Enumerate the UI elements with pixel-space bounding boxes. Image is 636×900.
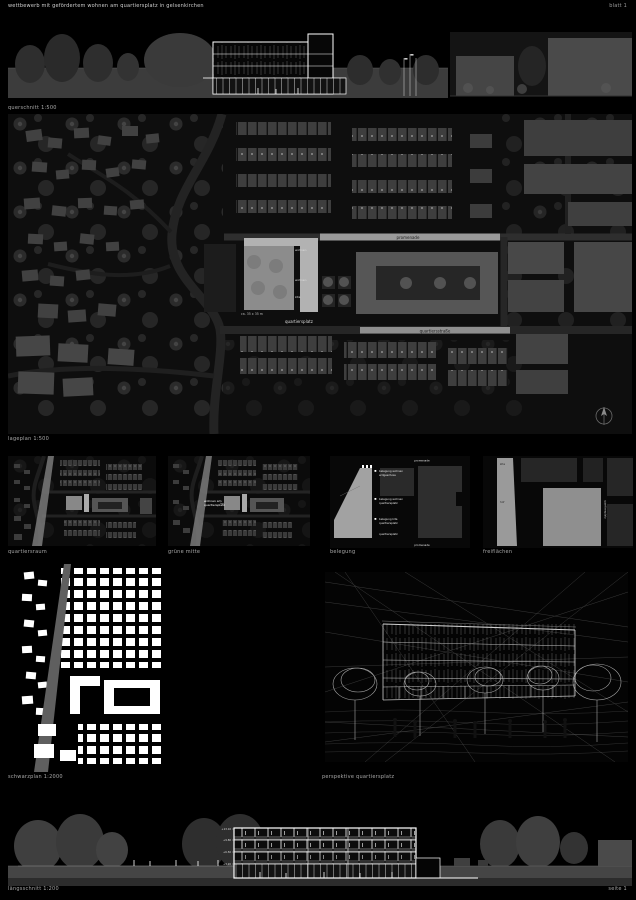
mini-a-drawing — [8, 456, 156, 546]
label-street-bottom: quartiersstraße — [420, 329, 451, 334]
presentation-board: wettbewerb mit gefördertem wohnen am qua… — [0, 0, 636, 900]
label-street-top: promenade — [397, 235, 420, 240]
caption-siteplan: lageplan 1:500 — [8, 436, 49, 442]
sheet-number: blatt 1 — [609, 3, 627, 9]
freiflaechen-label-kita: kita — [500, 462, 505, 466]
label-block-3: kita — [295, 295, 301, 299]
panel-top-elevation — [8, 28, 632, 104]
freiflaechen-square — [543, 488, 601, 546]
label-block-2: wohnen — [295, 278, 307, 282]
siteplan-courtyard-block — [356, 252, 498, 314]
caption-freiflaechen: freiflächen — [483, 549, 512, 555]
svg-text:+9.80: +9.80 — [223, 838, 231, 842]
caption-bottom-section: längsschnitt 1:200 — [8, 886, 59, 892]
mini-b-drawing: wohnen am quartiersplatz — [168, 456, 310, 546]
belegung-bottom-label: promenade — [414, 543, 430, 547]
panel-mini-b: wohnen am quartiersplatz — [168, 456, 310, 546]
label-block-1: wohnen — [295, 248, 307, 252]
belegung-drawing: promenade belegung wohnen erdgeschoss be… — [330, 456, 470, 548]
board-title: wettbewerb mit gefördertem wohnen am qua… — [8, 3, 204, 9]
label-plaza: quartiersplatz — [285, 319, 313, 324]
sketch-building — [382, 621, 576, 700]
svg-text:+6.50: +6.50 — [223, 850, 231, 854]
belegung-item: quartiersplatz — [379, 501, 398, 505]
section-right-building — [598, 840, 632, 866]
panel-bottom-section: +13.10 +9.80 +6.50 +3.20 — [8, 814, 632, 886]
caption-schwarzplan: schwarzplan 1:2000 — [8, 774, 63, 780]
panel-schwarzplan — [8, 564, 168, 772]
svg-text:+3.20: +3.20 — [223, 862, 231, 866]
caption-perspective: perspektive quartiersplatz — [322, 774, 394, 780]
freiflaechen-label-hof: hof — [500, 500, 504, 504]
belegung-top-label: promenade — [414, 459, 430, 463]
belegung-item: erdgeschoss — [379, 473, 396, 477]
panel-siteplan: promenade quartiersstraße quartiersplatz… — [8, 114, 632, 434]
building-section-white — [203, 34, 346, 94]
panel-freiflaechen: kita hof quartiersplatz — [483, 456, 633, 548]
bottom-section-drawing: +13.10 +9.80 +6.50 +3.20 — [8, 814, 632, 886]
label-plaza-note: ca. 35 x 35 m — [241, 312, 263, 316]
panel-perspective — [325, 572, 628, 762]
freiflaechen-label-square: quartiersplatz — [604, 500, 608, 519]
belegung-item: quartiersplatz — [379, 532, 398, 536]
top-elevation-drawing — [8, 28, 632, 104]
caption-mini-b: grüne mitte — [168, 549, 200, 555]
freiflaechen-drawing: kita hof quartiersplatz — [483, 456, 633, 548]
perspective-drawing — [325, 572, 628, 762]
page-number: seite 1 — [608, 886, 627, 892]
svg-text:+13.10: +13.10 — [221, 827, 231, 831]
panel-mini-a — [8, 456, 156, 546]
caption-mini-a: quartiersraum — [8, 549, 47, 555]
caption-top-elevation: querschnitt 1:500 — [8, 105, 57, 111]
siteplan-drawing: promenade quartiersstraße quartiersplatz… — [8, 114, 632, 434]
schwarzplan-drawing — [8, 564, 168, 772]
panel-belegung: promenade belegung wohnen erdgeschoss be… — [330, 456, 470, 548]
belegung-item: quartiersplatz — [379, 521, 398, 525]
caption-belegung: belegung — [330, 549, 355, 555]
